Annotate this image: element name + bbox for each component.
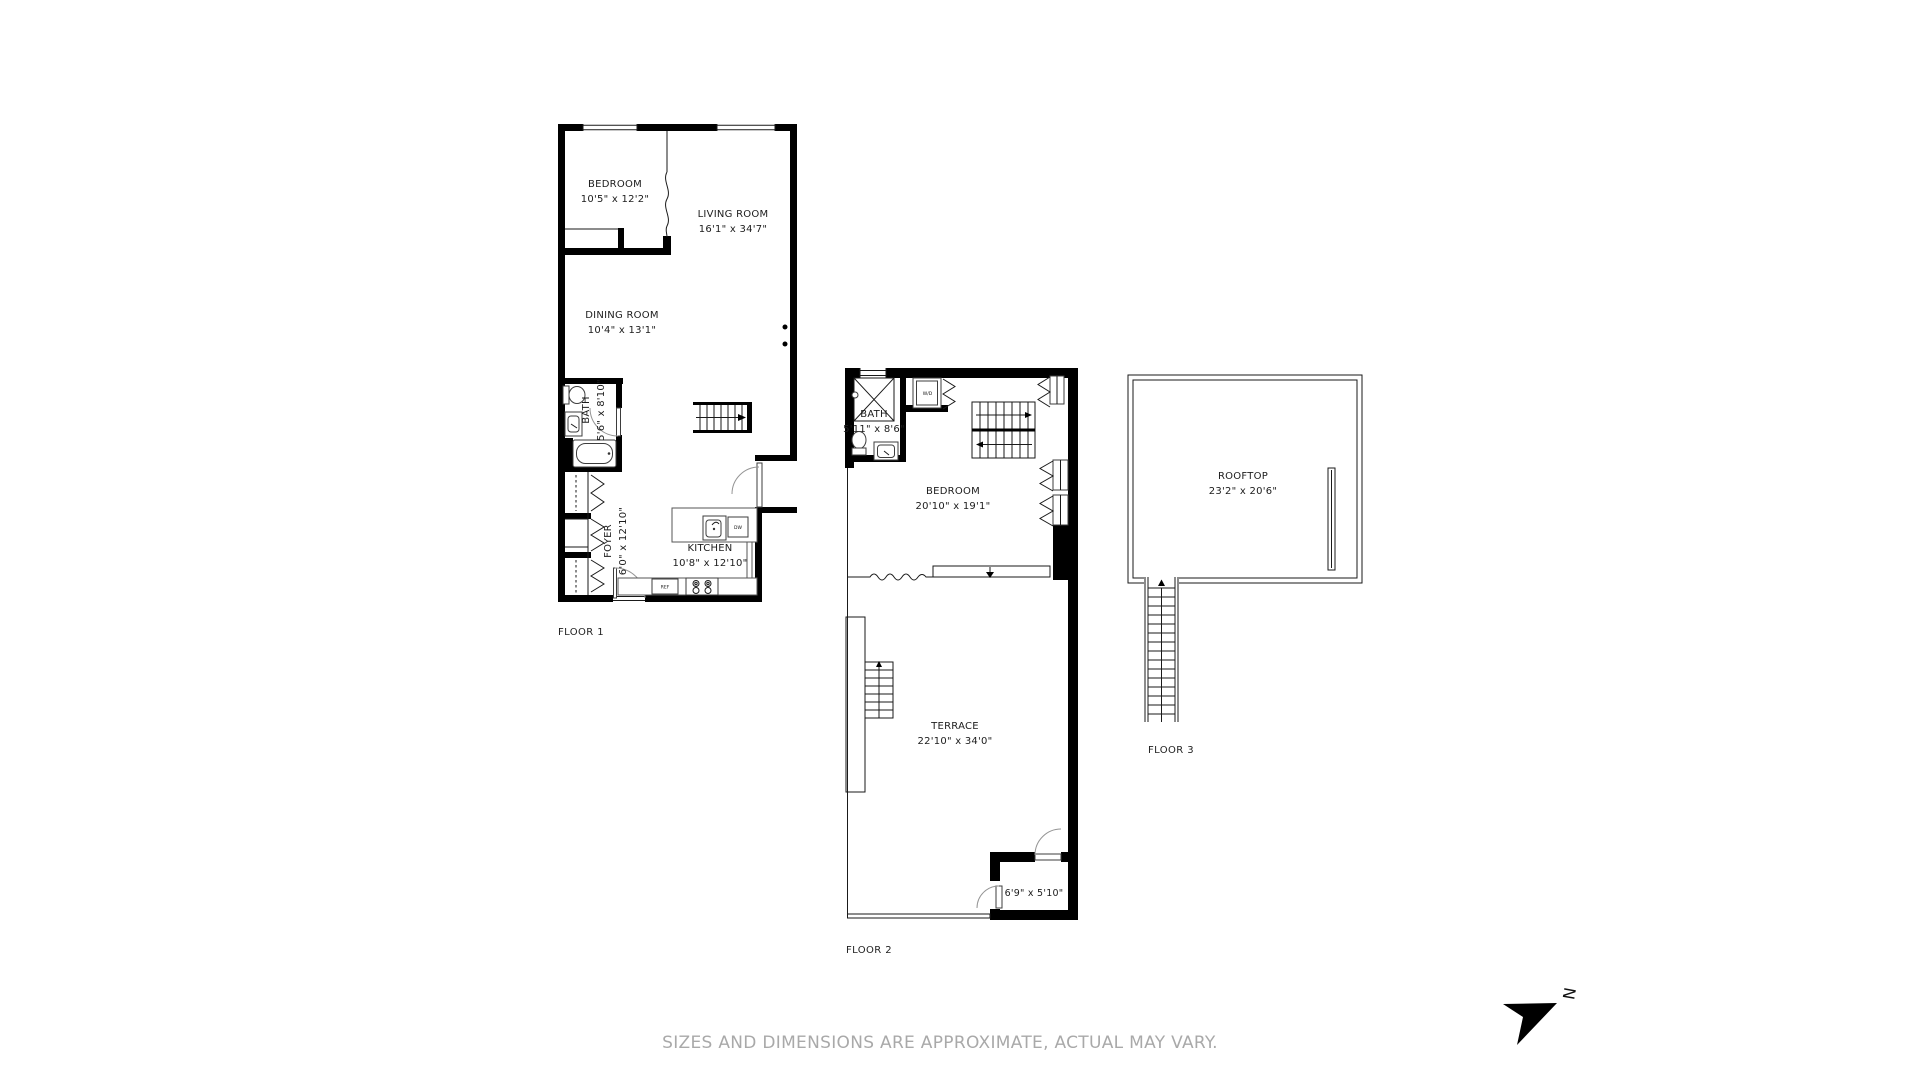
- floor2-sink-icon: [874, 442, 898, 460]
- floor2-bedroom-closets: [1040, 460, 1068, 526]
- floor1-dishwasher: DW: [728, 517, 748, 537]
- floor2-washer-dryer: W/D: [913, 378, 955, 409]
- floor2-terrace-stairs-icon: [865, 661, 893, 718]
- floor2-stairs-icon: [972, 402, 1035, 458]
- floor1-foyer-closet: [565, 472, 604, 595]
- floor1-stairs-icon: [693, 402, 752, 433]
- dishwasher-label: DW: [734, 525, 742, 531]
- floor1-kitchen-sink-icon: [703, 516, 726, 540]
- floor3-name: FLOOR 3: [1148, 745, 1194, 756]
- floor1-refrigerator: REF: [652, 579, 678, 594]
- floor1-bath-label: BATH 5'6" x 8'10": [579, 379, 609, 441]
- floor3-stairs-icon: [1145, 577, 1178, 722]
- floor2-storage-label: 6'9" x 5'10": [1005, 887, 1064, 901]
- refrigerator-label: REF: [661, 585, 670, 591]
- floor1-wall-dots: [783, 325, 788, 347]
- floor3-rooftop-label: ROOFTOP 23'2" x 20'6": [1209, 469, 1277, 499]
- floor1-name: FLOOR 1: [558, 627, 604, 638]
- floor1-bedroom-label: BEDROOM 10'5" x 12'2": [581, 177, 649, 207]
- floor2-bedroom-label: BEDROOM 20'10" x 19'1": [915, 484, 990, 514]
- floor2-terrace-label: TERRACE 22'10" x 34'0": [917, 719, 992, 749]
- washer-dryer-label: W/D: [923, 391, 933, 397]
- floor1-kitchen-island: DW: [672, 508, 757, 542]
- floor2-terrace-edge: [848, 566, 1050, 580]
- floor2-name: FLOOR 2: [846, 945, 892, 956]
- floor2-terrace-boundary: [848, 468, 991, 918]
- floor3-drawing: [1120, 370, 1370, 765]
- floor1-bathtub-icon: [573, 440, 616, 467]
- floor1-foyer-label: FOYER 6'0" x 12'10": [601, 507, 631, 575]
- floor2-window: [860, 368, 886, 378]
- floor1-entry-door: [732, 463, 762, 507]
- floor2-bath-label: BATH 5'11" x 8'6": [843, 407, 905, 437]
- floor2-drawing: W/D: [843, 365, 1083, 965]
- floor1-dining-room-label: DINING ROOM 10'4" x 13'1": [585, 308, 659, 338]
- floor1-living-room-label: LIVING ROOM 16'1" x 34'7": [698, 207, 769, 237]
- north-arrow-icon: [1495, 975, 1605, 1060]
- floor3-bench: [1328, 468, 1335, 570]
- floor2-entry-closet: [1038, 376, 1064, 407]
- floorplan-canvas: DW REF BEDROOM 10'5" x 12'2" LIVING ROOM…: [0, 0, 1920, 1080]
- floor1-stove-icon: [686, 578, 718, 595]
- floor2-planter: [846, 617, 865, 792]
- floor1-kitchen-label: KITCHEN 10'8" x 12'10": [672, 541, 747, 571]
